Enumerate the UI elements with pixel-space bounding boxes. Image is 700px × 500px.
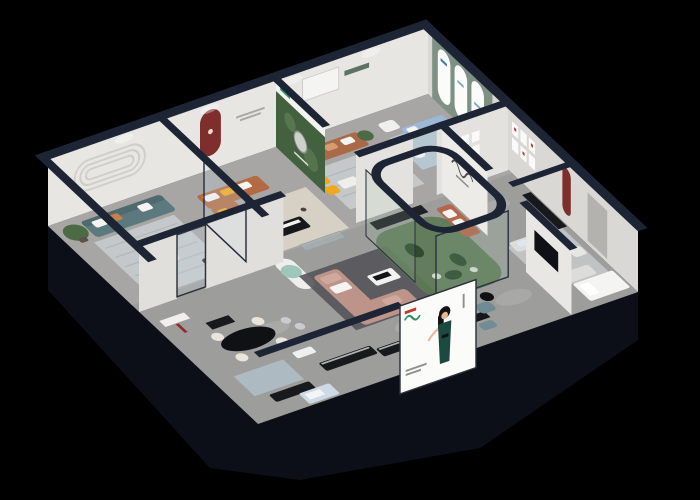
woman-green-gown xyxy=(438,320,451,365)
showroom-scene xyxy=(0,0,700,500)
vertical-text-dash xyxy=(463,294,465,309)
showroom-render xyxy=(0,0,700,500)
glass-door-panel xyxy=(177,225,206,297)
